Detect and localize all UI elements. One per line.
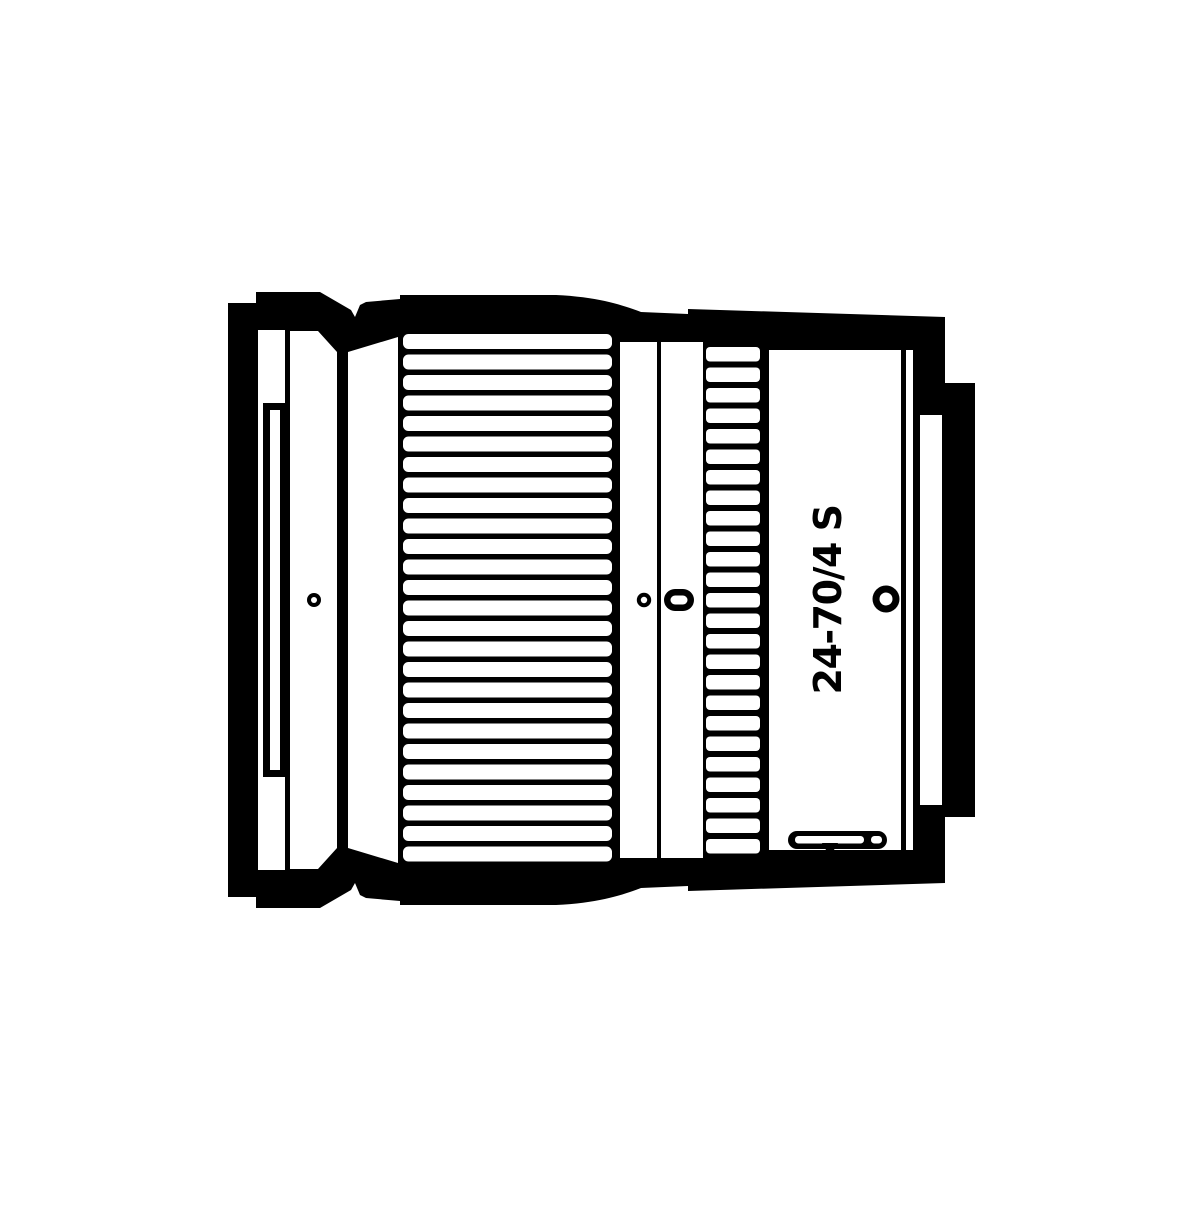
rib bbox=[403, 478, 612, 493]
bayonet-slot bbox=[920, 415, 942, 805]
rib bbox=[706, 798, 760, 813]
rib bbox=[403, 703, 612, 718]
rib bbox=[403, 375, 612, 390]
rib bbox=[706, 696, 760, 711]
lens-diagram-canvas: 24-70/4 S bbox=[0, 0, 1200, 1200]
mount-index-plate-slot bbox=[795, 836, 864, 844]
rib bbox=[403, 621, 612, 636]
mount-gasket-stripe bbox=[906, 350, 913, 850]
rib bbox=[706, 347, 760, 362]
rib bbox=[706, 757, 760, 772]
rib bbox=[403, 560, 612, 575]
lens-model-label: 24-70/4 S bbox=[806, 506, 850, 695]
rib bbox=[403, 355, 612, 370]
control-ring-ribs bbox=[706, 347, 760, 854]
rib bbox=[403, 785, 612, 800]
rib bbox=[706, 716, 760, 731]
mount-screw-center bbox=[880, 593, 893, 606]
rib bbox=[403, 416, 612, 431]
rib bbox=[706, 388, 760, 403]
filter-ring-groove-slot bbox=[270, 410, 280, 770]
mount-index-plate-slot-end bbox=[871, 836, 882, 844]
rib bbox=[403, 662, 612, 677]
rib bbox=[706, 778, 760, 793]
rib bbox=[706, 675, 760, 690]
rib bbox=[403, 744, 612, 759]
rib bbox=[706, 839, 760, 854]
rib bbox=[403, 519, 612, 534]
rib bbox=[403, 437, 612, 452]
rib bbox=[403, 334, 612, 349]
rib bbox=[403, 539, 612, 554]
rib bbox=[706, 634, 760, 649]
rib bbox=[706, 819, 760, 834]
rib bbox=[403, 765, 612, 780]
rib bbox=[706, 573, 760, 588]
rib bbox=[706, 511, 760, 526]
rib bbox=[706, 368, 760, 383]
rib bbox=[706, 593, 760, 608]
rib bbox=[403, 601, 612, 616]
taper-ring-face bbox=[348, 337, 398, 863]
rib bbox=[403, 806, 612, 821]
rib bbox=[403, 642, 612, 657]
rib bbox=[403, 826, 612, 841]
rib bbox=[403, 457, 612, 472]
rib bbox=[706, 552, 760, 567]
rib bbox=[403, 847, 612, 862]
rib bbox=[403, 683, 612, 698]
rib bbox=[706, 429, 760, 444]
rib bbox=[706, 409, 760, 424]
rib bbox=[706, 655, 760, 670]
rib bbox=[403, 724, 612, 739]
rib bbox=[403, 580, 612, 595]
rib bbox=[706, 614, 760, 629]
mid-barrel-index-dot-center bbox=[641, 597, 647, 603]
index-window-slot bbox=[671, 596, 688, 605]
rib bbox=[706, 470, 760, 485]
rib bbox=[706, 532, 760, 547]
lens-side-view-diagram: 24-70/4 S bbox=[0, 0, 1200, 1200]
front-alignment-dot-center bbox=[311, 597, 317, 603]
rib bbox=[706, 491, 760, 506]
rib bbox=[403, 498, 612, 513]
rib bbox=[706, 450, 760, 465]
rib bbox=[403, 396, 612, 411]
rib bbox=[706, 737, 760, 752]
